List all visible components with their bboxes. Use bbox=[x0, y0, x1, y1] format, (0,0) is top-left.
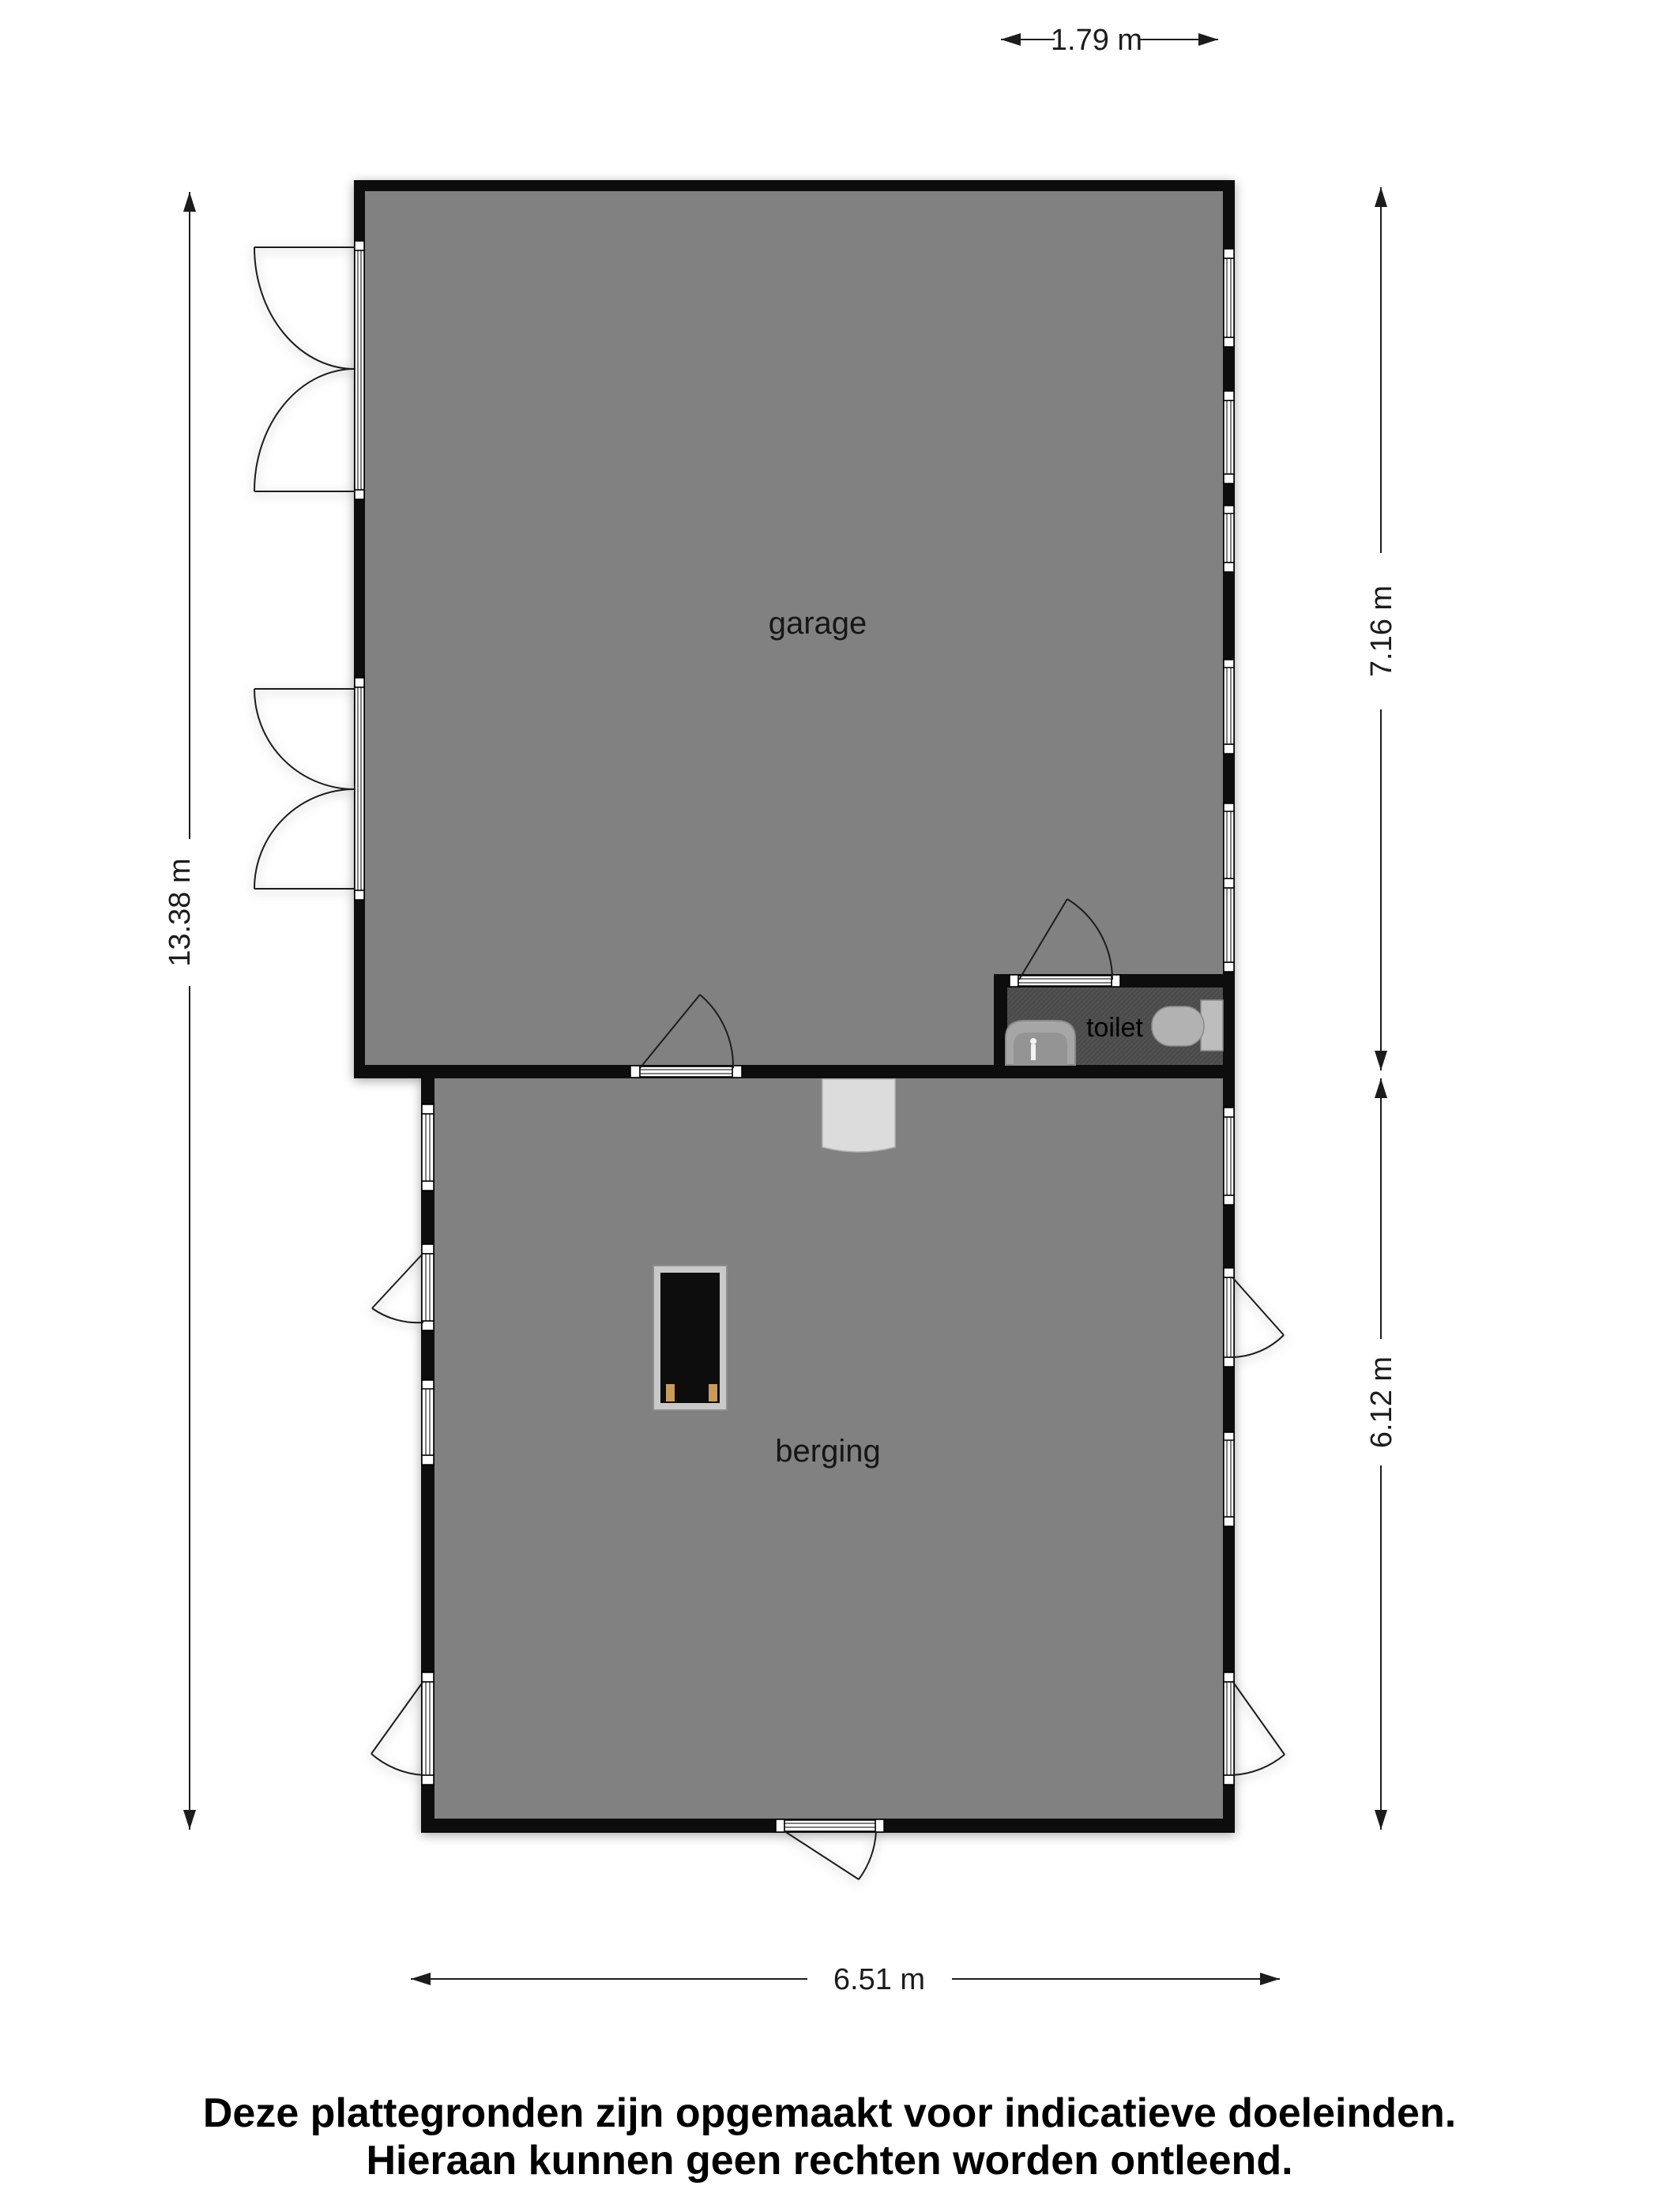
door bbox=[371, 1681, 434, 1775]
wall-divider bbox=[354, 1065, 1235, 1078]
window bbox=[1224, 668, 1234, 744]
floorplan-page: garage berging toilet 1.79 m 13.38 m 7.1… bbox=[0, 0, 1659, 2212]
dimension-label-total-height: 13.38 m bbox=[164, 858, 197, 966]
doormat bbox=[822, 1079, 895, 1152]
window bbox=[422, 1389, 434, 1455]
sink bbox=[1006, 1021, 1075, 1065]
window bbox=[1224, 1117, 1234, 1195]
building: garage berging toilet bbox=[254, 180, 1285, 1879]
dimension-top: 1.79 m bbox=[1001, 24, 1218, 57]
window bbox=[1224, 401, 1234, 474]
dimension-right-berging: 6.12 m bbox=[1365, 1078, 1398, 1830]
window bbox=[1224, 1440, 1234, 1517]
room-label-berging: berging bbox=[775, 1434, 880, 1469]
toilet-fixture bbox=[1152, 1000, 1223, 1051]
window bbox=[422, 1114, 434, 1181]
door bbox=[776, 1819, 884, 1879]
wood-stove bbox=[653, 1266, 727, 1410]
double-door bbox=[254, 687, 364, 890]
room-label-garage: garage bbox=[769, 606, 867, 641]
dimension-label-toilet-width: 1.79 m bbox=[1051, 24, 1142, 57]
window bbox=[1224, 811, 1234, 878]
room-label-toilet: toilet bbox=[1086, 1013, 1143, 1043]
floorplan-canvas: garage berging toilet 1.79 m 13.38 m 7.1… bbox=[0, 0, 1659, 2212]
dimension-right-garage: 7.16 m bbox=[1365, 187, 1398, 1070]
dimension-label-garage-height: 7.16 m bbox=[1365, 585, 1398, 677]
door bbox=[1224, 1681, 1285, 1775]
wall-top bbox=[354, 180, 1235, 191]
window bbox=[1224, 513, 1234, 562]
window bbox=[1224, 888, 1234, 962]
door bbox=[372, 1253, 434, 1322]
dimension-left: 13.38 m bbox=[164, 192, 197, 1830]
dimension-label-berging-width: 6.51 m bbox=[833, 1963, 925, 1996]
disclaimer-line-1: Deze plattegronden zijn opgemaakt voor i… bbox=[203, 2090, 1456, 2136]
dimension-label-berging-height: 6.12 m bbox=[1365, 1356, 1398, 1448]
dimension-bottom: 6.51 m bbox=[411, 1963, 1280, 1996]
disclaimer-line-2: Hieraan kunnen geen rechten worden ontle… bbox=[366, 2138, 1292, 2184]
door bbox=[1224, 1277, 1284, 1357]
double-door bbox=[254, 247, 364, 491]
window bbox=[1224, 258, 1234, 337]
